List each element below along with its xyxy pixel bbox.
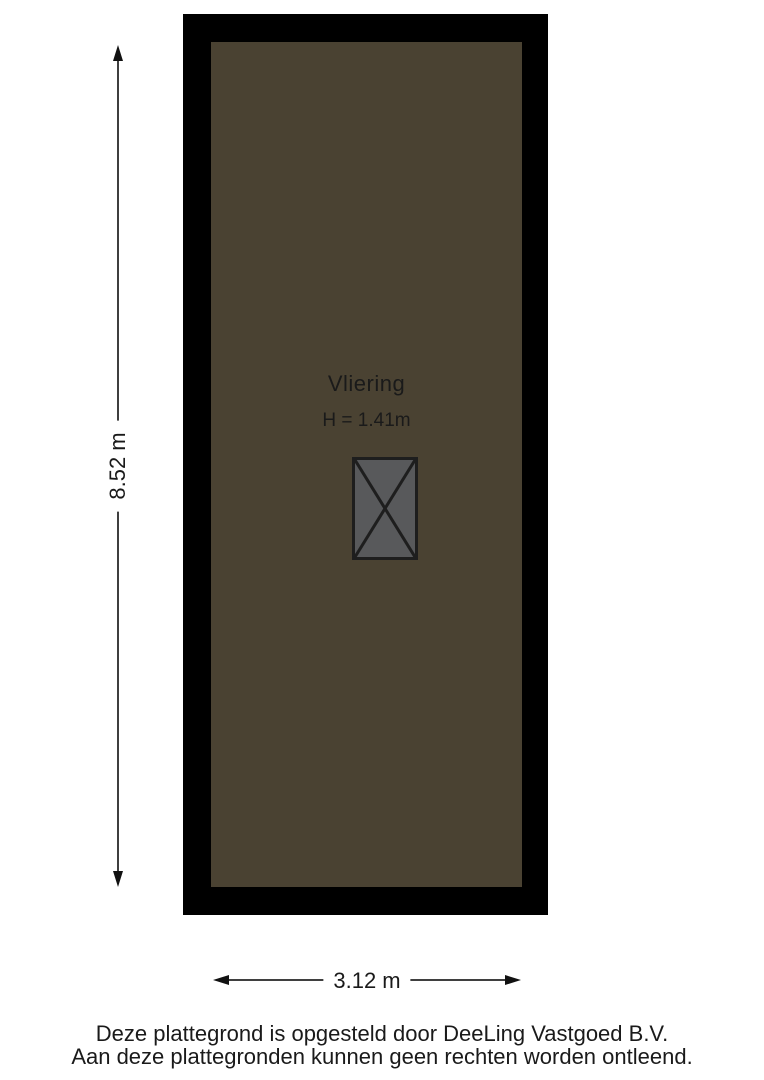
vertical-dimension: 8.52 m [108, 45, 128, 887]
room-floor: Vliering H = 1.41m [211, 42, 522, 887]
x-cross-icon [355, 460, 415, 557]
vertical-dimension-label: 8.52 m [103, 420, 133, 511]
disclaimer: Deze plattegrond is opgesteld door DeeLi… [0, 1022, 764, 1068]
room-name-label: Vliering [211, 371, 522, 397]
disclaimer-line-1: Deze plattegrond is opgesteld door DeeLi… [0, 1022, 764, 1045]
arrow-right-icon [505, 975, 521, 985]
disclaimer-line-2: Aan deze plattegronden kunnen geen recht… [0, 1045, 764, 1068]
horizontal-dimension: 3.12 m [213, 970, 521, 991]
arrow-left-icon [213, 975, 229, 985]
room-height-label: H = 1.41m [211, 410, 522, 432]
floor-plan: Vliering H = 1.41m [183, 14, 548, 915]
arrow-up-icon [113, 45, 123, 61]
stair-opening-icon [352, 457, 418, 560]
arrow-down-icon [113, 871, 123, 887]
horizontal-dimension-label: 3.12 m [323, 968, 410, 994]
